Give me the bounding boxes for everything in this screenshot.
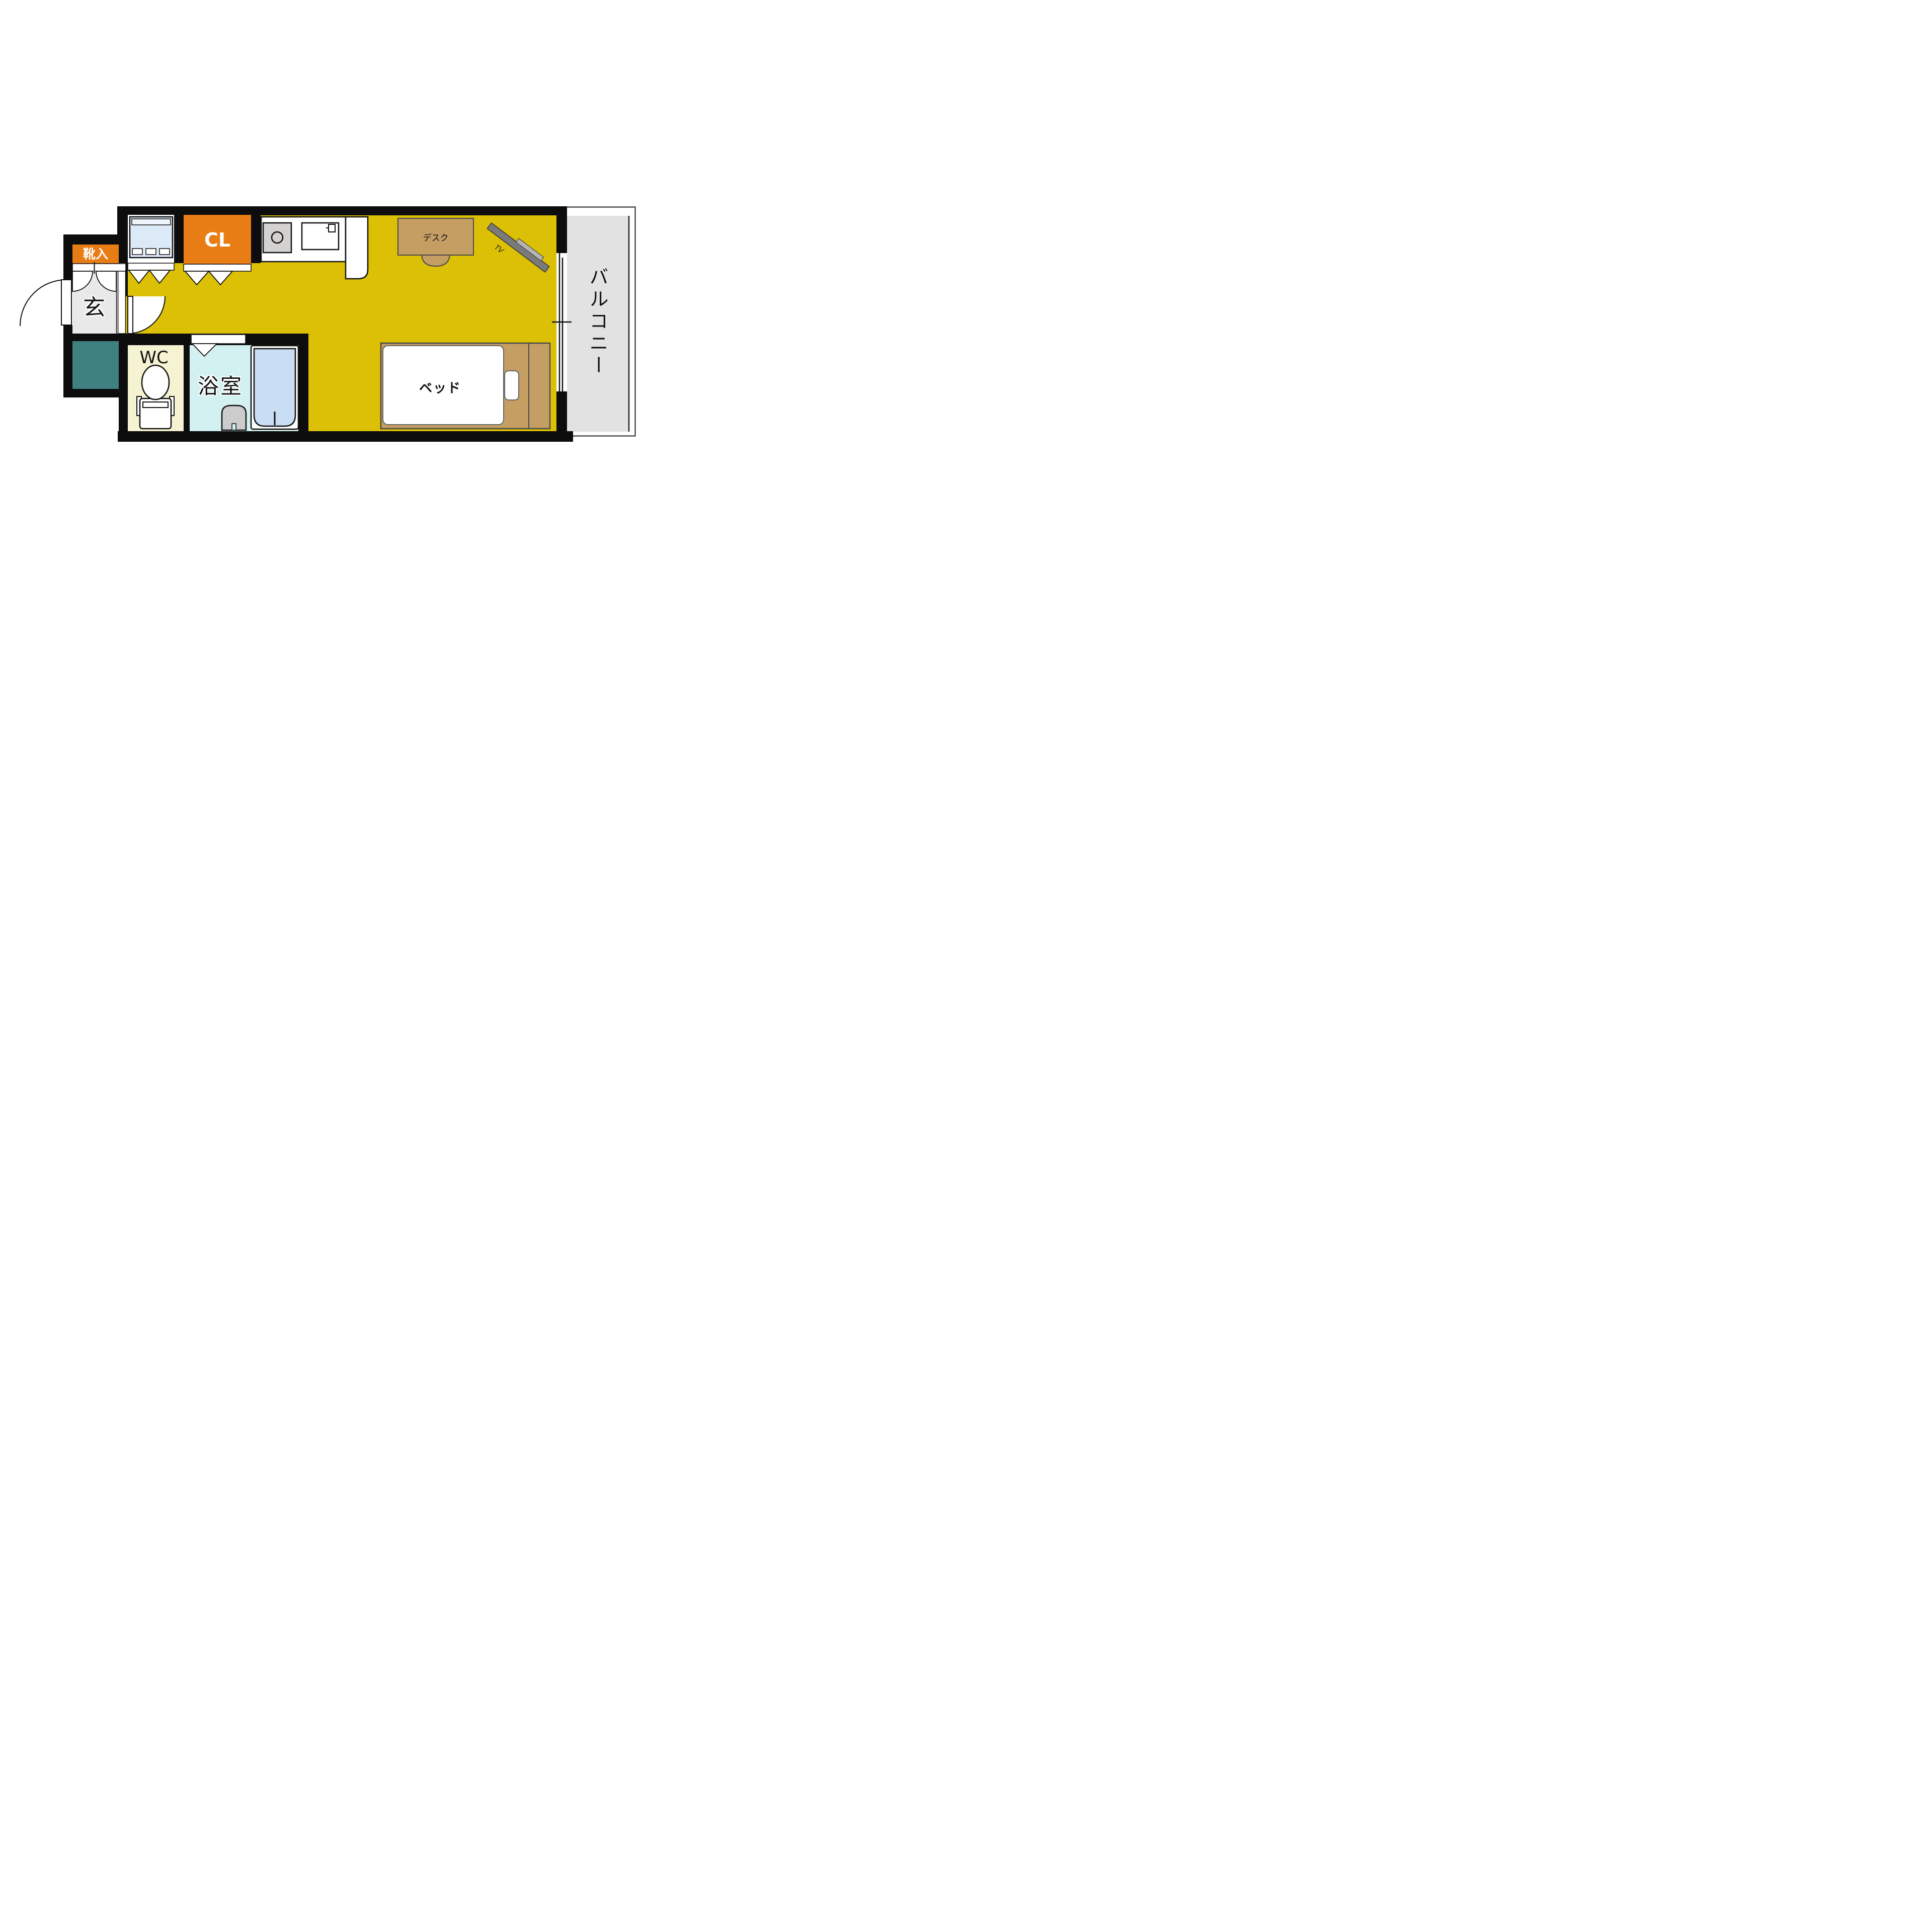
bath-stool-notch <box>232 424 236 430</box>
washer-button-3 <box>159 249 170 255</box>
floor-plan: TV <box>0 0 644 644</box>
balcony-label: バルコニー <box>588 267 607 377</box>
washer-door-track <box>128 263 174 270</box>
washer-button-1 <box>132 249 142 255</box>
bathroom-door-track <box>191 335 246 344</box>
stove <box>263 223 291 253</box>
bed-group <box>381 343 550 429</box>
closet-door-track <box>184 264 251 271</box>
front-door <box>20 280 71 326</box>
entrance-label: 玄 <box>83 297 105 319</box>
wall-closet-right <box>251 206 261 263</box>
wall-under-teal <box>63 389 119 397</box>
front-door-leaf <box>61 280 71 325</box>
wc-label: WC <box>139 349 168 366</box>
desk-label: デスク <box>423 234 449 243</box>
floor-plan-drawing: TV <box>0 0 644 644</box>
toilet-seat-line <box>143 402 168 408</box>
wall-washer-right <box>174 206 184 263</box>
entrance-step <box>118 271 126 334</box>
pillow <box>505 371 519 400</box>
wall-left-upper <box>63 234 72 280</box>
wall-top <box>118 206 567 215</box>
toilet-bowl <box>142 365 169 399</box>
interior-door-leaf <box>128 296 133 334</box>
washer-button-2 <box>146 249 156 255</box>
wall-washer-left <box>117 206 128 263</box>
utility-space <box>72 341 119 389</box>
washer-lid <box>132 219 171 225</box>
wall-right-upper <box>556 206 567 253</box>
bed-label: ベッド <box>419 382 461 395</box>
bathroom-label: 浴室 <box>198 376 243 397</box>
faucet-icon <box>329 224 335 232</box>
front-door-swing-arc <box>20 280 66 326</box>
closet-label: CL <box>204 230 230 250</box>
counter-side <box>346 217 368 279</box>
shoe-cabinet-label: 靴入 <box>83 248 108 261</box>
wall-under-entrance <box>63 334 119 341</box>
shoe-cabinet-track <box>72 264 126 271</box>
